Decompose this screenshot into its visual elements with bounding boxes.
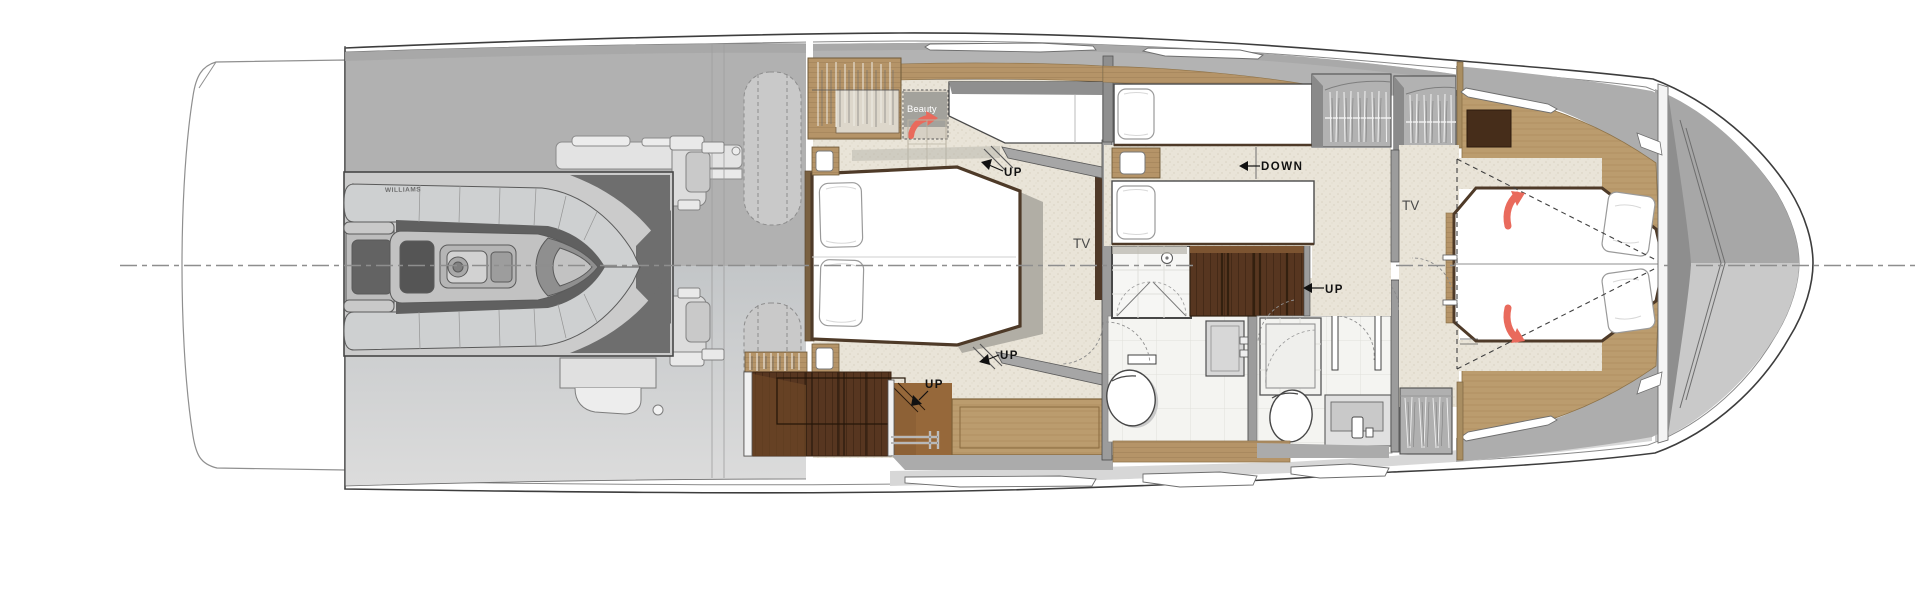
svg-text:UP: UP: [1325, 284, 1344, 296]
svg-text:UP: UP: [1004, 167, 1023, 179]
svg-text:UP: UP: [1000, 350, 1019, 362]
svg-text:TV: TV: [1073, 236, 1090, 251]
svg-text:UP: UP: [925, 379, 944, 391]
svg-text:TV: TV: [1402, 198, 1419, 213]
svg-text:DOWN: DOWN: [1261, 161, 1303, 173]
svg-text:Beauty: Beauty: [907, 104, 937, 115]
svg-text:WILLIAMS: WILLIAMS: [385, 186, 421, 194]
